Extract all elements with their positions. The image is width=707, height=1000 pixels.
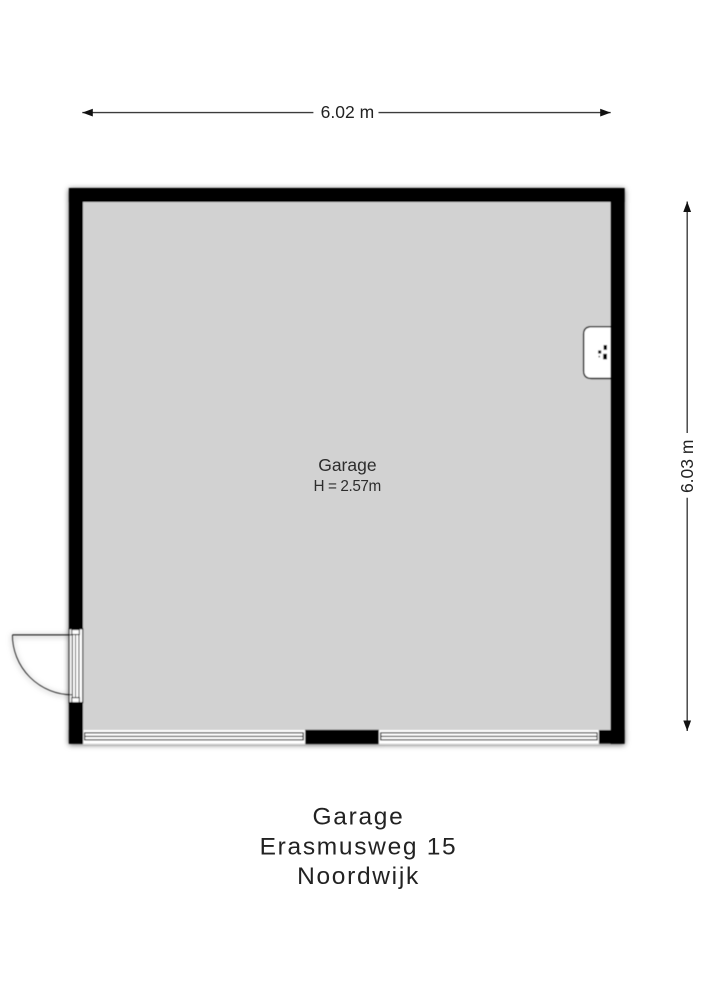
svg-text:Noordwijk: Noordwijk [297, 863, 420, 890]
svg-text:6.02 m: 6.02 m [321, 102, 375, 122]
svg-text:Garage: Garage [313, 803, 405, 830]
svg-text:H = 2.57m: H = 2.57m [313, 478, 380, 495]
svg-text:6.03 m: 6.03 m [677, 440, 697, 494]
svg-text:Erasmusweg 15: Erasmusweg 15 [260, 833, 458, 860]
svg-text:Garage: Garage [318, 455, 376, 475]
